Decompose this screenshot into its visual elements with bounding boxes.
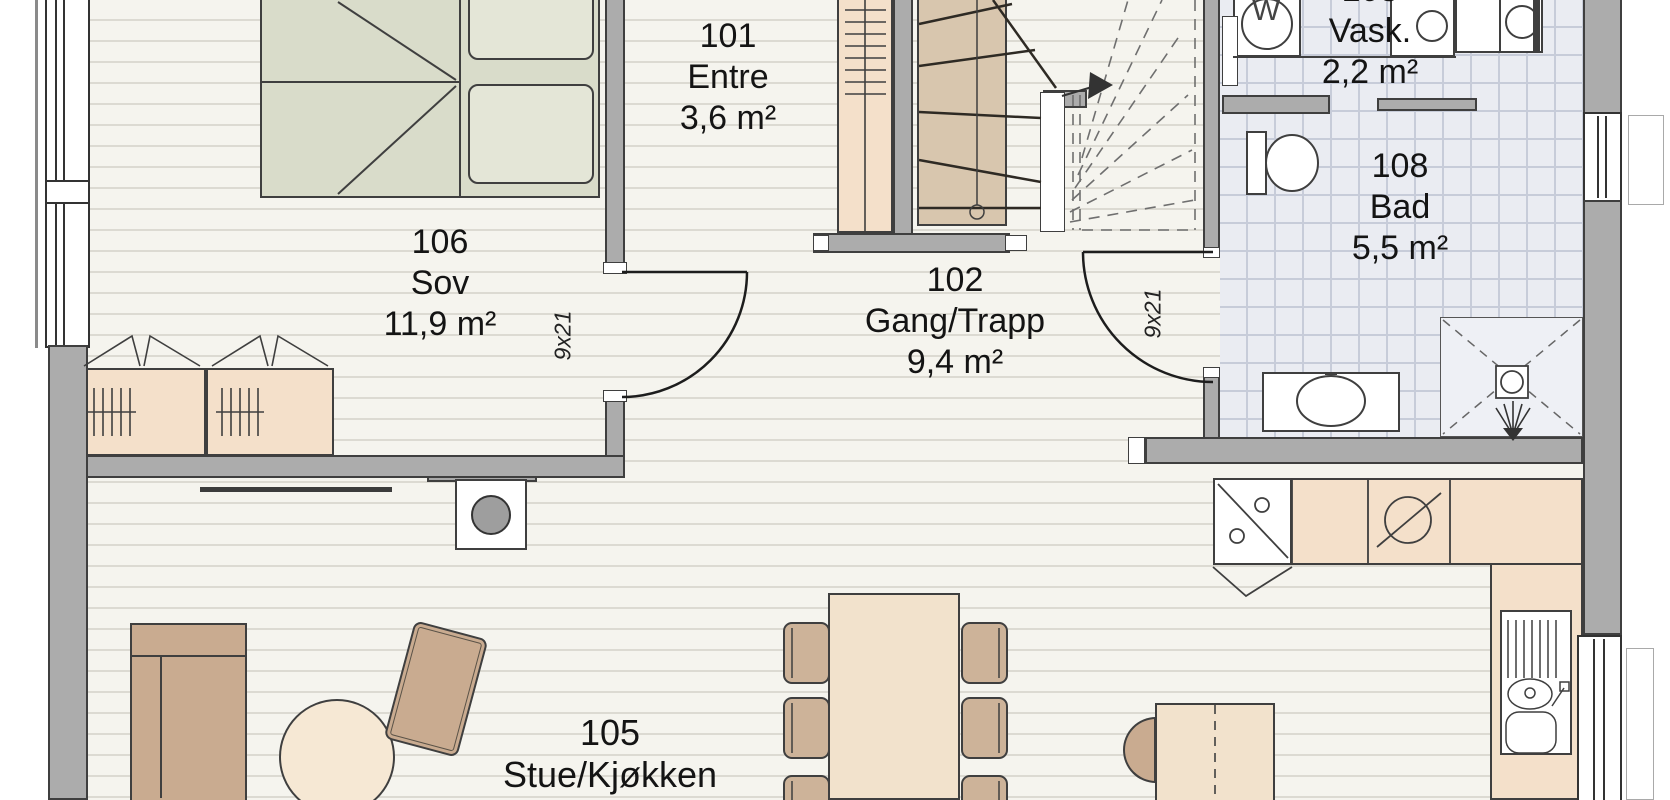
door-jamb [603, 390, 627, 402]
room-area: 5,5 m² [1300, 228, 1500, 269]
bed-pillow [468, 0, 594, 60]
shower [1440, 317, 1583, 437]
dining-table [828, 593, 960, 800]
door-jamb [1203, 247, 1220, 258]
wall-right-middle [1583, 200, 1622, 635]
room-number: 101 [618, 16, 838, 57]
window-outer-trim [1628, 115, 1664, 205]
label-room-stue: 105 Stue/Kjøkken 34,6 m² [460, 712, 760, 800]
room-name: Stue/Kjøkken [460, 754, 760, 796]
floor-plan: 106 Sov 11,9 m² 101 Entre 3,6 m² 102 Gan… [0, 0, 1670, 800]
bed-pillow [468, 84, 594, 184]
stair-handrail [1040, 92, 1065, 232]
door-size-label-bad: 9x21 [1139, 289, 1166, 339]
room-area: 34,6 m² [460, 796, 760, 800]
left-outer-trim [35, 0, 38, 348]
staircase [917, 0, 1007, 226]
window-right-kitchen-glass [1593, 639, 1605, 800]
room-name: Bad [1300, 187, 1500, 228]
room-number: 108 [1300, 146, 1500, 187]
door-jamb [1005, 235, 1027, 251]
window-outer-trim [1626, 648, 1654, 800]
washbasin [1262, 372, 1400, 432]
wall-under-stairs [813, 233, 1010, 253]
room-area: 3,6 m² [618, 98, 838, 139]
wall-vask-bad-right [1377, 98, 1477, 111]
room-name: Sov [330, 263, 550, 304]
wall-jamb [1128, 437, 1145, 464]
washing-machine-letter: W [1252, 0, 1280, 28]
room-area: 11,9 m² [330, 304, 550, 345]
dining-chair [961, 697, 1008, 759]
wall-right-upper [1583, 0, 1622, 114]
wardrobe [206, 368, 334, 456]
room-area: 2,2 m² [1270, 52, 1470, 93]
dining-chair [961, 622, 1008, 684]
label-room-bad: 108 Bad 5,5 m² [1300, 146, 1500, 269]
door-jamb [1203, 367, 1220, 378]
room-number: 103 [1270, 0, 1470, 11]
laundry-unit-divider [1533, 0, 1540, 53]
door-jamb [813, 235, 829, 251]
window-left-glass [55, 0, 65, 348]
window-right-bad-glass [1597, 116, 1607, 198]
room-number: 105 [460, 712, 760, 754]
dining-chair [783, 775, 830, 800]
room-number: 102 [830, 260, 1080, 301]
wall-vask-bad-left [1222, 95, 1330, 114]
wall-bad-left-upper [1203, 0, 1220, 255]
label-room-vask: 103 Vask. 2,2 m² [1270, 0, 1470, 93]
wall-bad-kitchen [1145, 437, 1583, 464]
room-name: Gang/Trapp [830, 301, 1080, 342]
room-name: Entre [618, 57, 838, 98]
label-room-sov: 106 Sov 11,9 m² [330, 222, 550, 345]
label-room-gang: 102 Gang/Trapp 9,4 m² [830, 260, 1080, 383]
room-area: 9,4 m² [830, 342, 1080, 383]
dining-chair [783, 622, 830, 684]
window-left [45, 0, 90, 348]
kitchen-sink-unit [1500, 610, 1572, 755]
wall-entre-closet [893, 0, 913, 235]
tv-bench [200, 487, 392, 492]
label-room-entre: 101 Entre 3,6 m² [618, 16, 838, 139]
window-left-mullion [45, 180, 90, 204]
sofa [130, 623, 247, 800]
wardrobe [78, 368, 206, 456]
dining-chair [961, 775, 1008, 800]
wood-stove [455, 479, 527, 550]
laundry-door-leaf [1222, 16, 1238, 86]
desk [1155, 703, 1275, 800]
entry-closet [837, 0, 893, 233]
wall-left [48, 345, 88, 800]
dishwasher [1213, 478, 1292, 565]
room-number: 106 [330, 222, 550, 263]
wall-sov-stue [62, 455, 625, 478]
dining-chair [783, 697, 830, 759]
door-jamb [603, 262, 627, 274]
door-size-label-sov: 9x21 [549, 311, 576, 361]
room-name: Vask. [1270, 11, 1470, 52]
